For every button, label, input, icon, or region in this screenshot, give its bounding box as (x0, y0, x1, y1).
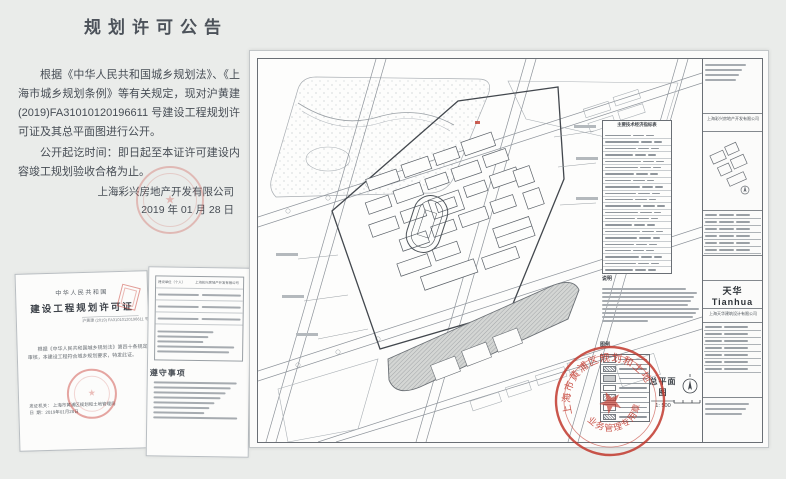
illegible-text-line (705, 413, 742, 415)
client-name-box: 上海彩兴房地产开发有限公司 (703, 114, 762, 132)
illegible-text-line (157, 345, 234, 348)
illegible-text-line (154, 386, 231, 389)
illegible-text-line (154, 391, 226, 394)
illegible-text-line (158, 317, 199, 320)
revision-row (704, 233, 761, 240)
client-name: 上海彩兴房地产开发有限公司 (705, 116, 760, 122)
signature-row (704, 331, 761, 338)
page-title: 规划许可公告 (84, 13, 228, 38)
company-seal-stamp: ★ (136, 166, 204, 234)
rules-lines (153, 381, 243, 419)
firm-name: 上海天华建筑设计有限公司 (705, 311, 760, 317)
blank-box (703, 256, 762, 281)
revision-row (704, 212, 761, 219)
illegible-text-line (705, 403, 749, 405)
illegible-text-line (705, 64, 746, 66)
cert-field-label: 建设单位（个人） (158, 280, 172, 285)
site-plan-frame: 主要技术经济指标表 说明 (257, 58, 703, 443)
illegible-text-line (154, 381, 237, 384)
notes-lines (602, 288, 702, 321)
illegible-text-line (157, 340, 203, 343)
note-line (602, 304, 688, 306)
illegible-text-line (202, 294, 241, 297)
revision-row (704, 226, 761, 233)
announcement-paragraph-2: 公开起讫时间：即日起至本证许可建设内容竣工规划验收合格为止。 (18, 144, 240, 182)
signature-row (704, 345, 761, 352)
illegible-text-line (158, 305, 199, 308)
note-line (602, 312, 696, 314)
indicator-table-title: 主要技术经济指标表 (603, 121, 671, 128)
illegible-text-line (157, 330, 213, 333)
cert-field-value: 上海彩兴房地产开发有限公司 (195, 280, 239, 285)
illegible-text-line (153, 406, 209, 409)
certificate-body-text: 根据《中华人民共和国城乡规划法》第四十条规定，经审核，本建设工程符合城乡规划要求… (28, 342, 158, 362)
permit-certificate-page1: 中华人民共和国 建设工程规划许可证 沪黄建 (2019) FA310101201… (15, 270, 153, 452)
signature-row (704, 366, 761, 373)
red-survey-mark (475, 121, 480, 124)
certificate-number: 沪黄建 (2019) FA31010120196611 号 (82, 315, 138, 323)
note-line (602, 300, 691, 302)
note-line (602, 316, 693, 318)
project-name-box (703, 59, 762, 114)
illegible-text-line (705, 69, 742, 71)
note-line (602, 292, 697, 294)
revision-table (703, 211, 762, 256)
permit-certificate-page2: 建设单位（个人） 上海彩兴房地产开发有限公司 遵守事项 (146, 266, 252, 457)
illegible-text-line (202, 306, 241, 309)
scanned-announcement-page: { "announcement": { "title": "规划许可公告", "… (0, 0, 786, 455)
illegible-text-line (157, 335, 208, 338)
issuer-label: 发证机关 (29, 403, 47, 409)
key-plan-box (703, 132, 762, 211)
cert-remarks-lines (155, 324, 242, 360)
signature-row (704, 359, 761, 366)
notes-title: 说明 (602, 275, 664, 282)
firm-logo: 天华Tianhua (703, 281, 762, 309)
indicator-table: 主要技术经济指标表 (602, 120, 672, 274)
signature-row (704, 324, 761, 331)
illegible-text-line (153, 401, 214, 404)
signature-row (704, 352, 761, 359)
rules-title: 遵守事项 (150, 367, 249, 379)
notes-block: 说明 (602, 275, 702, 324)
sheet-number-box (703, 398, 762, 442)
title-block-strip: 上海彩兴房地产开发有限公司 天华Tianhua 上海天华建筑设计有限公司 (702, 58, 763, 443)
note-line (602, 308, 699, 310)
illegible-text-line (153, 396, 220, 399)
signature-row (704, 338, 761, 345)
issuer-seal-star-icon: ★ (88, 388, 96, 399)
indicator-table-rows (603, 133, 671, 274)
revision-row (704, 247, 761, 254)
illegible-text-line (705, 408, 746, 410)
illegible-text-line (202, 318, 241, 321)
note-line (602, 288, 686, 290)
illegible-text-line (705, 74, 739, 76)
company-seal-star-icon: ★ (165, 192, 176, 206)
key-plan-sketch (705, 134, 758, 202)
revision-row (704, 240, 761, 247)
certificate-country: 中华人民共和国 (32, 287, 130, 298)
illegible-text-line (157, 350, 229, 353)
announcement-body: 根据《中华人民共和国城乡规划法》、《上海市城乡规划条例》等有关规定，现对沪黄建 … (18, 66, 240, 184)
signature-table (703, 323, 762, 398)
note-line (602, 320, 648, 322)
firm-name-box: 上海天华建筑设计有限公司 (703, 309, 762, 323)
announcement-paragraph-1: 根据《中华人民共和国城乡规划法》、《上海市城乡规划条例》等有关规定，现对沪黄建 … (18, 66, 240, 142)
illegible-text-line (153, 411, 204, 414)
revision-row (704, 219, 761, 226)
note-line (602, 296, 694, 298)
illegible-text-line (153, 416, 237, 419)
site-plan-sheet: 主要技术经济指标表 说明 (249, 50, 769, 448)
illegible-text-line (705, 79, 736, 81)
illegible-text-line (158, 293, 199, 296)
